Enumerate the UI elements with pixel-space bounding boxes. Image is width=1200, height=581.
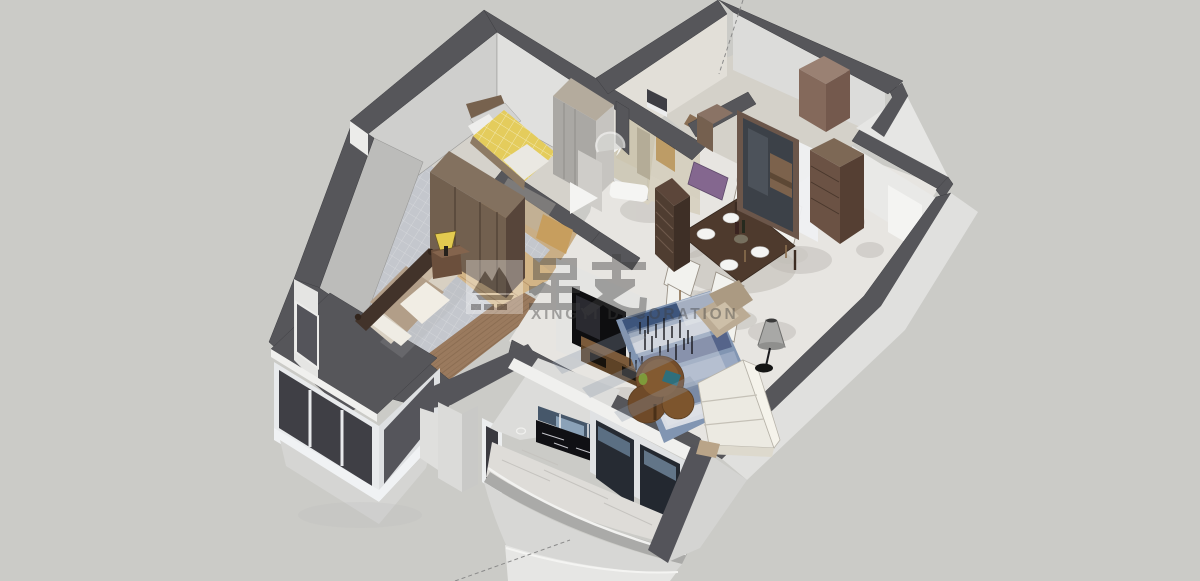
svg-text:XINGYI DECORATION: XINGYI DECORATION [531,306,739,323]
